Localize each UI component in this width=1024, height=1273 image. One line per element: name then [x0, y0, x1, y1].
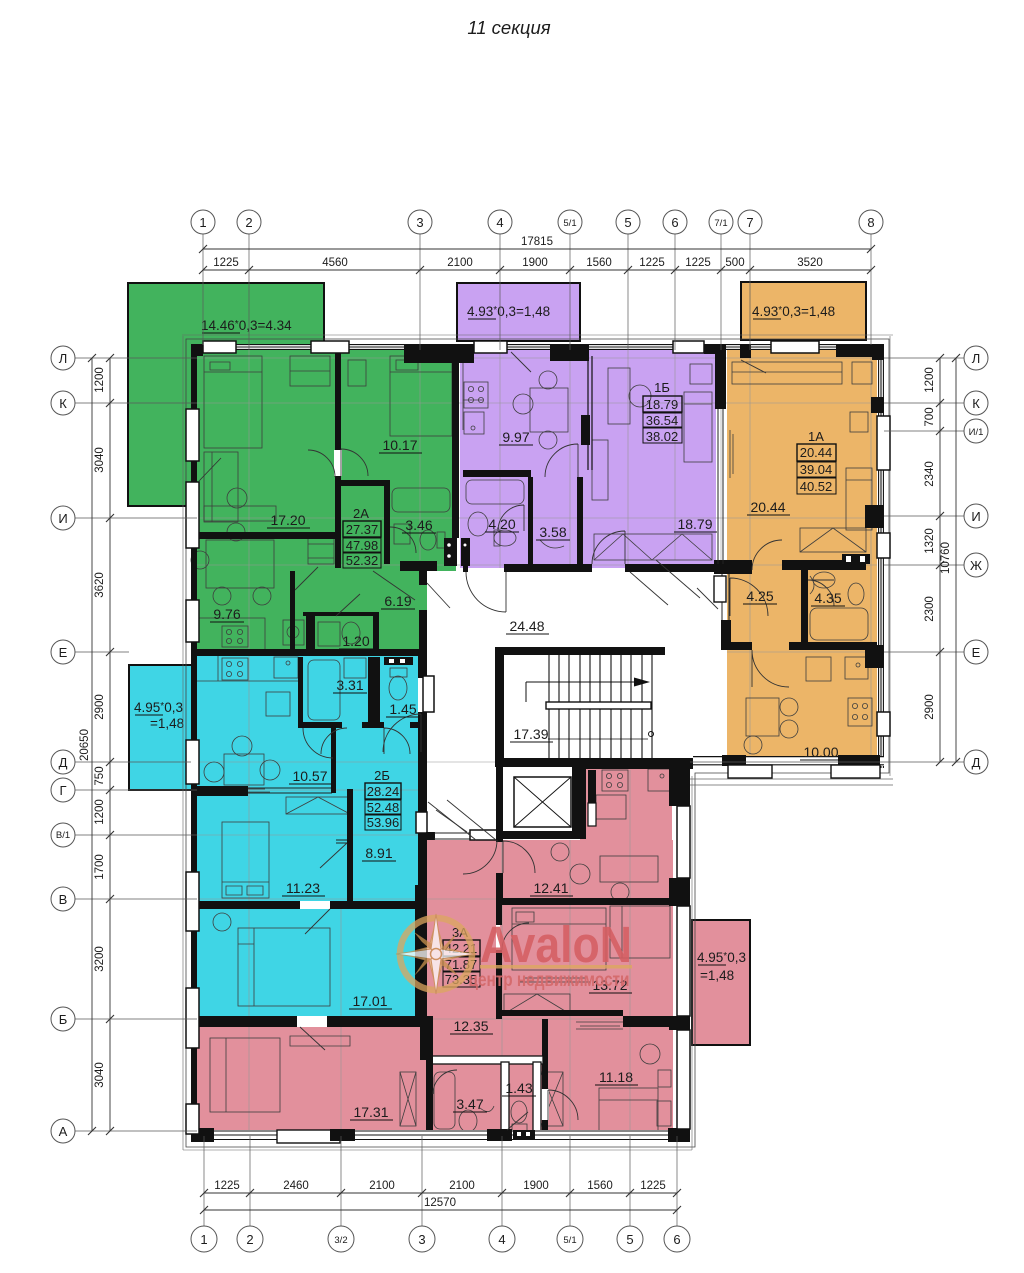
svg-text:17.01: 17.01 [352, 993, 387, 1009]
svg-text:4.93*0,3=1,48: 4.93*0,3=1,48 [752, 304, 835, 319]
svg-text:28.24: 28.24 [367, 784, 400, 799]
svg-text:2100: 2100 [449, 1180, 475, 1192]
svg-text:1900: 1900 [522, 257, 548, 269]
svg-text:2300: 2300 [924, 596, 936, 622]
svg-text:3200: 3200 [94, 946, 106, 972]
svg-text:8: 8 [867, 215, 874, 230]
svg-text:4.25: 4.25 [746, 588, 773, 604]
svg-text:1225: 1225 [214, 1180, 240, 1192]
svg-text:1200: 1200 [94, 367, 106, 393]
svg-text:И: И [58, 511, 67, 526]
svg-text:4.95*0,3: 4.95*0,3 [134, 700, 183, 715]
svg-text:39.04: 39.04 [800, 462, 833, 477]
svg-text:9.97: 9.97 [502, 429, 529, 445]
svg-text:3040: 3040 [94, 1062, 106, 1088]
svg-text:6: 6 [673, 1232, 680, 1247]
svg-text:Д: Д [972, 755, 981, 770]
svg-text:В/1: В/1 [56, 830, 70, 841]
svg-text:53.96: 53.96 [367, 815, 400, 830]
svg-text:11.23: 11.23 [286, 880, 320, 896]
svg-text:6: 6 [671, 215, 678, 230]
svg-text:4560: 4560 [322, 257, 348, 269]
svg-text:2900: 2900 [94, 694, 106, 720]
svg-text:1320: 1320 [924, 528, 936, 554]
svg-text:1560: 1560 [587, 1180, 613, 1192]
svg-text:К: К [972, 396, 980, 411]
svg-text:20.44: 20.44 [800, 445, 833, 460]
svg-text:Ж: Ж [970, 558, 982, 573]
svg-text:3.46: 3.46 [405, 517, 432, 533]
svg-text:12570: 12570 [424, 1197, 456, 1209]
svg-text:1700: 1700 [94, 854, 106, 880]
svg-text:11.18: 11.18 [599, 1069, 633, 1085]
svg-text:Е: Е [972, 645, 981, 660]
svg-text:750: 750 [94, 766, 106, 785]
svg-text:27.37: 27.37 [346, 522, 379, 537]
svg-text:4: 4 [496, 215, 503, 230]
svg-text:10.17: 10.17 [382, 437, 417, 453]
svg-text:Л: Л [59, 351, 68, 366]
svg-text:1225: 1225 [639, 257, 665, 269]
svg-text:17.31: 17.31 [353, 1104, 388, 1120]
svg-text:=1,48: =1,48 [700, 968, 734, 983]
svg-text:4.35: 4.35 [814, 590, 841, 606]
svg-text:3.58: 3.58 [539, 524, 566, 540]
svg-text:=1,48: =1,48 [150, 716, 184, 731]
svg-text:40.52: 40.52 [800, 479, 833, 494]
svg-text:5: 5 [624, 215, 631, 230]
svg-text:9.76: 9.76 [213, 606, 240, 622]
svg-text:20.44: 20.44 [750, 499, 785, 515]
svg-text:10.00: 10.00 [803, 744, 838, 760]
svg-text:4: 4 [498, 1232, 505, 1247]
svg-text:52.48: 52.48 [367, 800, 400, 815]
svg-text:И: И [971, 509, 980, 524]
svg-text:3040: 3040 [94, 447, 106, 473]
svg-text:1225: 1225 [685, 257, 711, 269]
svg-text:2: 2 [245, 215, 252, 230]
svg-text:3.47: 3.47 [456, 1096, 483, 1112]
svg-text:10760: 10760 [940, 542, 952, 574]
svg-text:2100: 2100 [369, 1180, 395, 1192]
svg-text:В: В [59, 892, 68, 907]
svg-text:центр недвижимости: центр недвижимости [469, 969, 630, 991]
svg-text:18.79: 18.79 [646, 397, 679, 412]
svg-text:52.32: 52.32 [346, 553, 379, 568]
svg-text:1225: 1225 [213, 257, 239, 269]
svg-text:А: А [59, 1124, 68, 1139]
svg-text:4.93*0,3=1,48: 4.93*0,3=1,48 [467, 304, 550, 319]
svg-text:3/2: 3/2 [334, 1235, 347, 1246]
svg-text:11 секция: 11 секция [467, 17, 550, 38]
svg-text:4.20: 4.20 [488, 516, 515, 532]
svg-text:1200: 1200 [924, 367, 936, 393]
svg-text:17.20: 17.20 [270, 512, 305, 528]
svg-text:И/1: И/1 [969, 427, 984, 438]
svg-text:20650: 20650 [79, 729, 91, 761]
svg-text:8.91: 8.91 [365, 845, 392, 861]
svg-text:1.20: 1.20 [342, 633, 369, 649]
svg-text:47.98: 47.98 [346, 538, 379, 553]
svg-text:2340: 2340 [924, 461, 936, 487]
svg-text:5: 5 [626, 1232, 633, 1247]
svg-text:17.39: 17.39 [513, 726, 548, 742]
svg-text:12.41: 12.41 [533, 880, 568, 896]
svg-text:Д: Д [59, 755, 68, 770]
svg-text:1900: 1900 [523, 1180, 549, 1192]
svg-text:500: 500 [725, 257, 744, 269]
svg-text:3620: 3620 [94, 572, 106, 598]
svg-text:17815: 17815 [521, 236, 553, 248]
svg-text:10.57: 10.57 [292, 768, 327, 784]
svg-text:3: 3 [416, 215, 423, 230]
svg-text:5/1: 5/1 [563, 218, 576, 229]
svg-text:Е: Е [59, 645, 68, 660]
svg-text:1.45: 1.45 [389, 701, 416, 717]
svg-text:1: 1 [199, 215, 206, 230]
svg-text:AvaloN: AvaloN [480, 916, 632, 973]
svg-text:36.54: 36.54 [646, 413, 679, 428]
svg-text:24.48: 24.48 [509, 618, 544, 634]
svg-text:Г: Г [59, 783, 66, 798]
svg-text:1200: 1200 [94, 799, 106, 825]
svg-text:1560: 1560 [586, 257, 612, 269]
svg-text:Л: Л [972, 351, 981, 366]
svg-text:5/1: 5/1 [563, 1235, 576, 1246]
svg-text:7: 7 [746, 215, 753, 230]
svg-text:2460: 2460 [283, 1180, 309, 1192]
svg-text:1.43: 1.43 [505, 1080, 532, 1096]
svg-text:18.79: 18.79 [677, 516, 712, 532]
svg-text:2А: 2А [353, 506, 369, 521]
svg-text:2Б: 2Б [374, 768, 390, 783]
svg-text:7/1: 7/1 [714, 218, 727, 229]
svg-text:6.19: 6.19 [384, 593, 411, 609]
svg-text:1Б: 1Б [654, 380, 670, 395]
svg-text:14.46*0,3=4.34: 14.46*0,3=4.34 [201, 318, 292, 333]
svg-text:2900: 2900 [924, 694, 936, 720]
svg-text:3: 3 [418, 1232, 425, 1247]
svg-text:1: 1 [200, 1232, 207, 1247]
svg-text:2: 2 [246, 1232, 253, 1247]
svg-text:700: 700 [924, 407, 936, 426]
svg-text:12.35: 12.35 [453, 1018, 488, 1034]
svg-text:3520: 3520 [797, 257, 823, 269]
svg-text:1225: 1225 [640, 1180, 666, 1192]
svg-text:2100: 2100 [447, 257, 473, 269]
svg-text:К: К [59, 396, 67, 411]
svg-text:38.02: 38.02 [646, 429, 679, 444]
svg-text:1А: 1А [808, 429, 824, 444]
svg-text:Б: Б [59, 1012, 68, 1027]
svg-text:3.31: 3.31 [336, 677, 363, 693]
svg-text:4.95*0,3: 4.95*0,3 [697, 950, 746, 965]
